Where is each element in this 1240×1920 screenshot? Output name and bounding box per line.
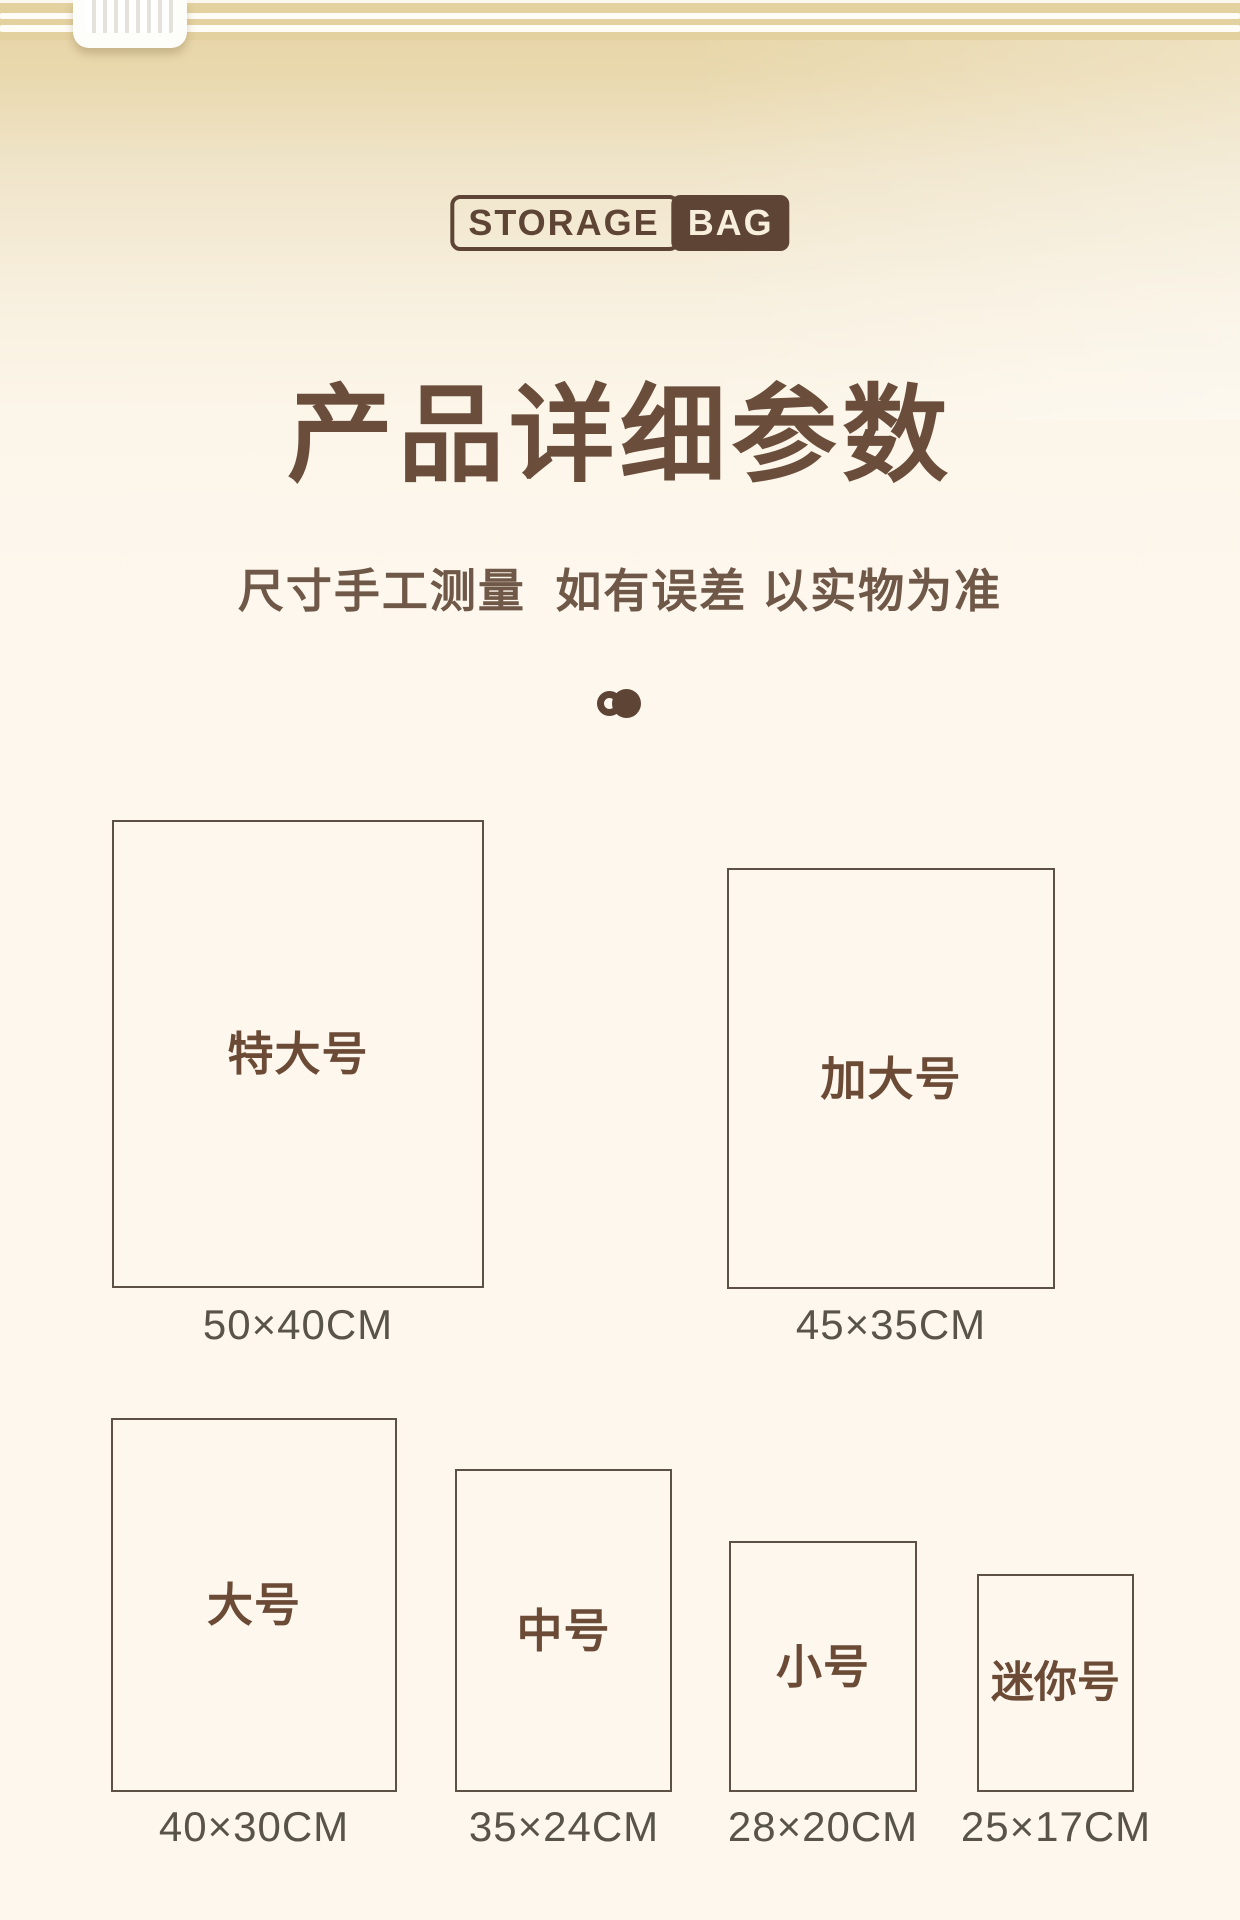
size-box-medium: 中号 (455, 1469, 672, 1792)
size-box-xxl: 加大号 (727, 868, 1055, 1289)
size-box-large: 大号 (111, 1418, 397, 1792)
size-box-xl: 特大号 (112, 820, 484, 1288)
size-dimensions: 25×17CM (961, 1804, 1151, 1850)
logo-bag-text: BAG (688, 205, 774, 241)
logo-bag-badge: BAG (672, 195, 790, 251)
size-box-mini: 迷你号 (977, 1574, 1134, 1792)
size-label: 中号 (517, 1608, 611, 1654)
product-parameters-page: STORAGE BAG 产品详细参数 尺寸手工测量 如有误差 以实物为准 特大号… (0, 0, 1240, 1920)
size-box-small: 小号 (729, 1541, 917, 1792)
page-subtitle: 尺寸手工测量 如有误差 以实物为准 (0, 566, 1240, 617)
zipper-ridges (85, 0, 175, 33)
brand-logo: STORAGE BAG (450, 195, 789, 251)
size-dimensions: 40×30CM (159, 1804, 349, 1850)
size-dimensions: 45×35CM (796, 1302, 986, 1348)
size-label: 小号 (776, 1644, 870, 1690)
logo-storage-frame: STORAGE (450, 195, 679, 251)
size-dimensions: 50×40CM (203, 1302, 393, 1348)
size-dimensions: 28×20CM (728, 1804, 918, 1850)
size-label: 特大号 (228, 1031, 369, 1077)
carousel-dot-filled-icon (612, 689, 641, 718)
logo-storage-text: STORAGE (468, 205, 659, 241)
size-label: 迷你号 (991, 1662, 1120, 1705)
size-label: 大号 (207, 1582, 301, 1628)
page-title: 产品详细参数 (0, 378, 1240, 495)
zipper-slider-icon (73, 0, 187, 48)
size-label: 加大号 (821, 1056, 962, 1102)
size-dimensions: 35×24CM (469, 1804, 659, 1850)
